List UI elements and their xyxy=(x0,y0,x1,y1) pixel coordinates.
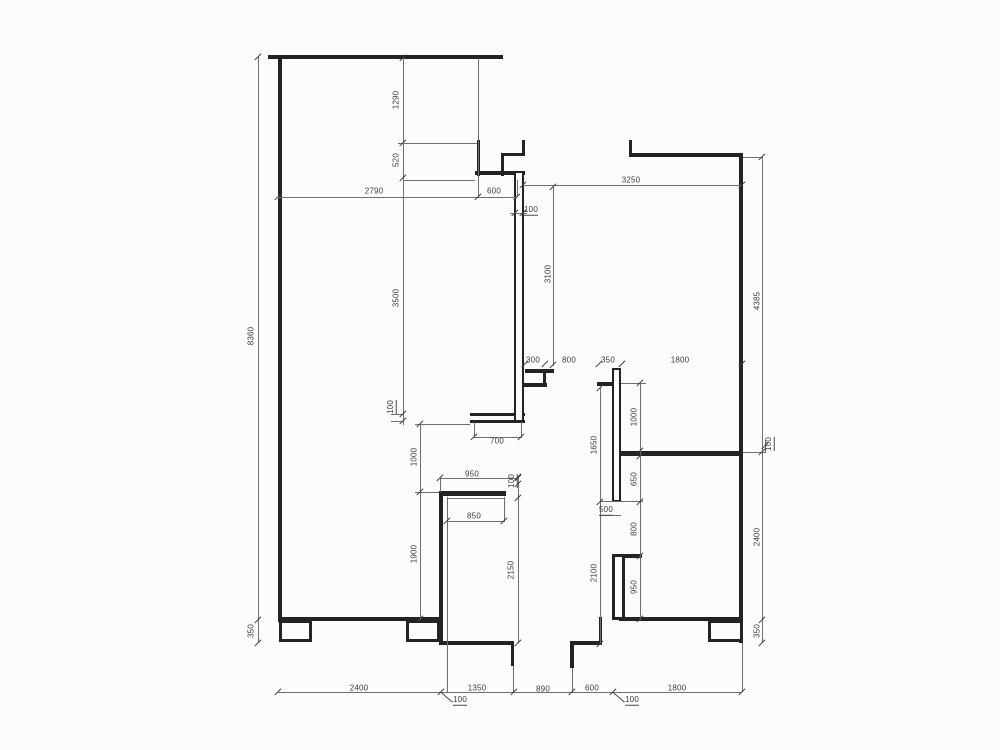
dimension-label: 3100 xyxy=(544,265,553,284)
dimension-label: 850 xyxy=(467,512,481,521)
dimension-tick xyxy=(758,639,765,646)
wall-segment xyxy=(443,641,514,645)
dimension-label: 100 xyxy=(453,695,467,706)
dimension-label: 1000 xyxy=(410,448,419,467)
wall-segment xyxy=(629,153,743,157)
dimension-label: 350 xyxy=(753,624,762,638)
wall-segment xyxy=(708,620,743,642)
wall-segment xyxy=(629,140,632,157)
wall-segment xyxy=(511,643,515,666)
dimension-label: 100 xyxy=(764,437,775,451)
dimension-label: 2150 xyxy=(507,561,516,580)
dimension-line xyxy=(621,383,646,384)
dimension-label: 3500 xyxy=(392,289,401,308)
wall-segment xyxy=(522,140,525,156)
dimension-label: 600 xyxy=(585,684,599,693)
wall-segment xyxy=(543,369,546,387)
dimension-line xyxy=(258,57,259,643)
dimension-label: 4385 xyxy=(753,292,762,311)
dimension-label: 100 xyxy=(386,400,397,414)
dimension-label: 1800 xyxy=(668,684,687,693)
dimension-line xyxy=(447,521,504,522)
dimension-tick xyxy=(541,360,548,367)
dimension-label: 8360 xyxy=(247,327,256,346)
wall-segment xyxy=(268,55,503,59)
wall-segment xyxy=(514,171,524,422)
dimension-line xyxy=(762,157,763,643)
dimension-tick xyxy=(618,360,625,367)
dimension-label: 3250 xyxy=(622,176,641,185)
dimension-leader-line xyxy=(441,692,453,703)
dimension-label: 700 xyxy=(490,437,504,446)
dimension-line xyxy=(447,498,504,499)
dimension-label: 2400 xyxy=(350,684,369,693)
dimension-line xyxy=(600,388,601,645)
dimension-line xyxy=(600,501,643,502)
dimension-line xyxy=(742,643,743,692)
dimension-label: 1800 xyxy=(671,356,690,365)
dimension-label: 950 xyxy=(465,470,479,479)
wall-segment xyxy=(525,369,554,373)
dimension-label: 800 xyxy=(630,522,639,536)
dimension-label: 500 xyxy=(599,505,613,516)
dimension-label: 520 xyxy=(392,153,401,167)
dimension-line xyxy=(278,197,517,198)
dimension-label: 600 xyxy=(487,187,501,196)
wall-segment xyxy=(439,491,506,496)
wall-segment xyxy=(612,554,625,620)
dimension-label: 1350 xyxy=(468,684,487,693)
dimension-line xyxy=(403,180,475,181)
dimension-tick xyxy=(254,639,261,646)
dimension-line xyxy=(398,143,477,144)
dimension-line xyxy=(403,57,404,425)
dimension-line xyxy=(420,424,421,620)
dimension-label: 300 xyxy=(526,356,540,365)
wall-segment xyxy=(279,620,312,642)
wall-segment xyxy=(501,153,504,176)
dimension-line xyxy=(440,477,441,492)
dimension-tick xyxy=(517,433,524,440)
wall-segment xyxy=(570,643,574,668)
floor-plan-drawing: 1290520279060010032503100438583603500100… xyxy=(0,0,1000,750)
dimension-label: 100 xyxy=(524,205,538,216)
dimension-label: 2790 xyxy=(365,187,384,196)
dimension-label: 1650 xyxy=(590,436,599,455)
dimension-label: 650 xyxy=(630,472,639,486)
wall-segment xyxy=(739,154,744,643)
dimension-label: 2400 xyxy=(753,528,762,547)
dimension-line xyxy=(447,497,448,692)
dimension-label: 1290 xyxy=(392,91,401,110)
wall-segment xyxy=(278,55,282,622)
dimension-label: 800 xyxy=(562,356,576,365)
dimension-label: 1000 xyxy=(630,408,639,427)
dimension-label: 950 xyxy=(630,580,639,594)
dimension-line xyxy=(478,58,479,197)
wall-segment xyxy=(406,620,440,642)
dimension-label: 100 xyxy=(507,474,518,488)
dimension-tick xyxy=(738,688,745,695)
dimension-label: 1900 xyxy=(410,545,419,564)
dimension-line xyxy=(513,666,514,692)
dimension-label: 350 xyxy=(601,356,615,365)
dimension-tick xyxy=(549,361,556,368)
dimension-label: 890 xyxy=(536,685,550,694)
dimension-leader-line xyxy=(613,692,625,703)
dimension-label: 350 xyxy=(247,624,256,638)
dimension-label: 100 xyxy=(625,695,639,706)
dimension-line xyxy=(553,186,554,366)
dimension-line xyxy=(415,424,470,425)
dimension-label: 2100 xyxy=(590,564,599,583)
wall-segment xyxy=(612,368,621,502)
dimension-line xyxy=(518,477,519,643)
